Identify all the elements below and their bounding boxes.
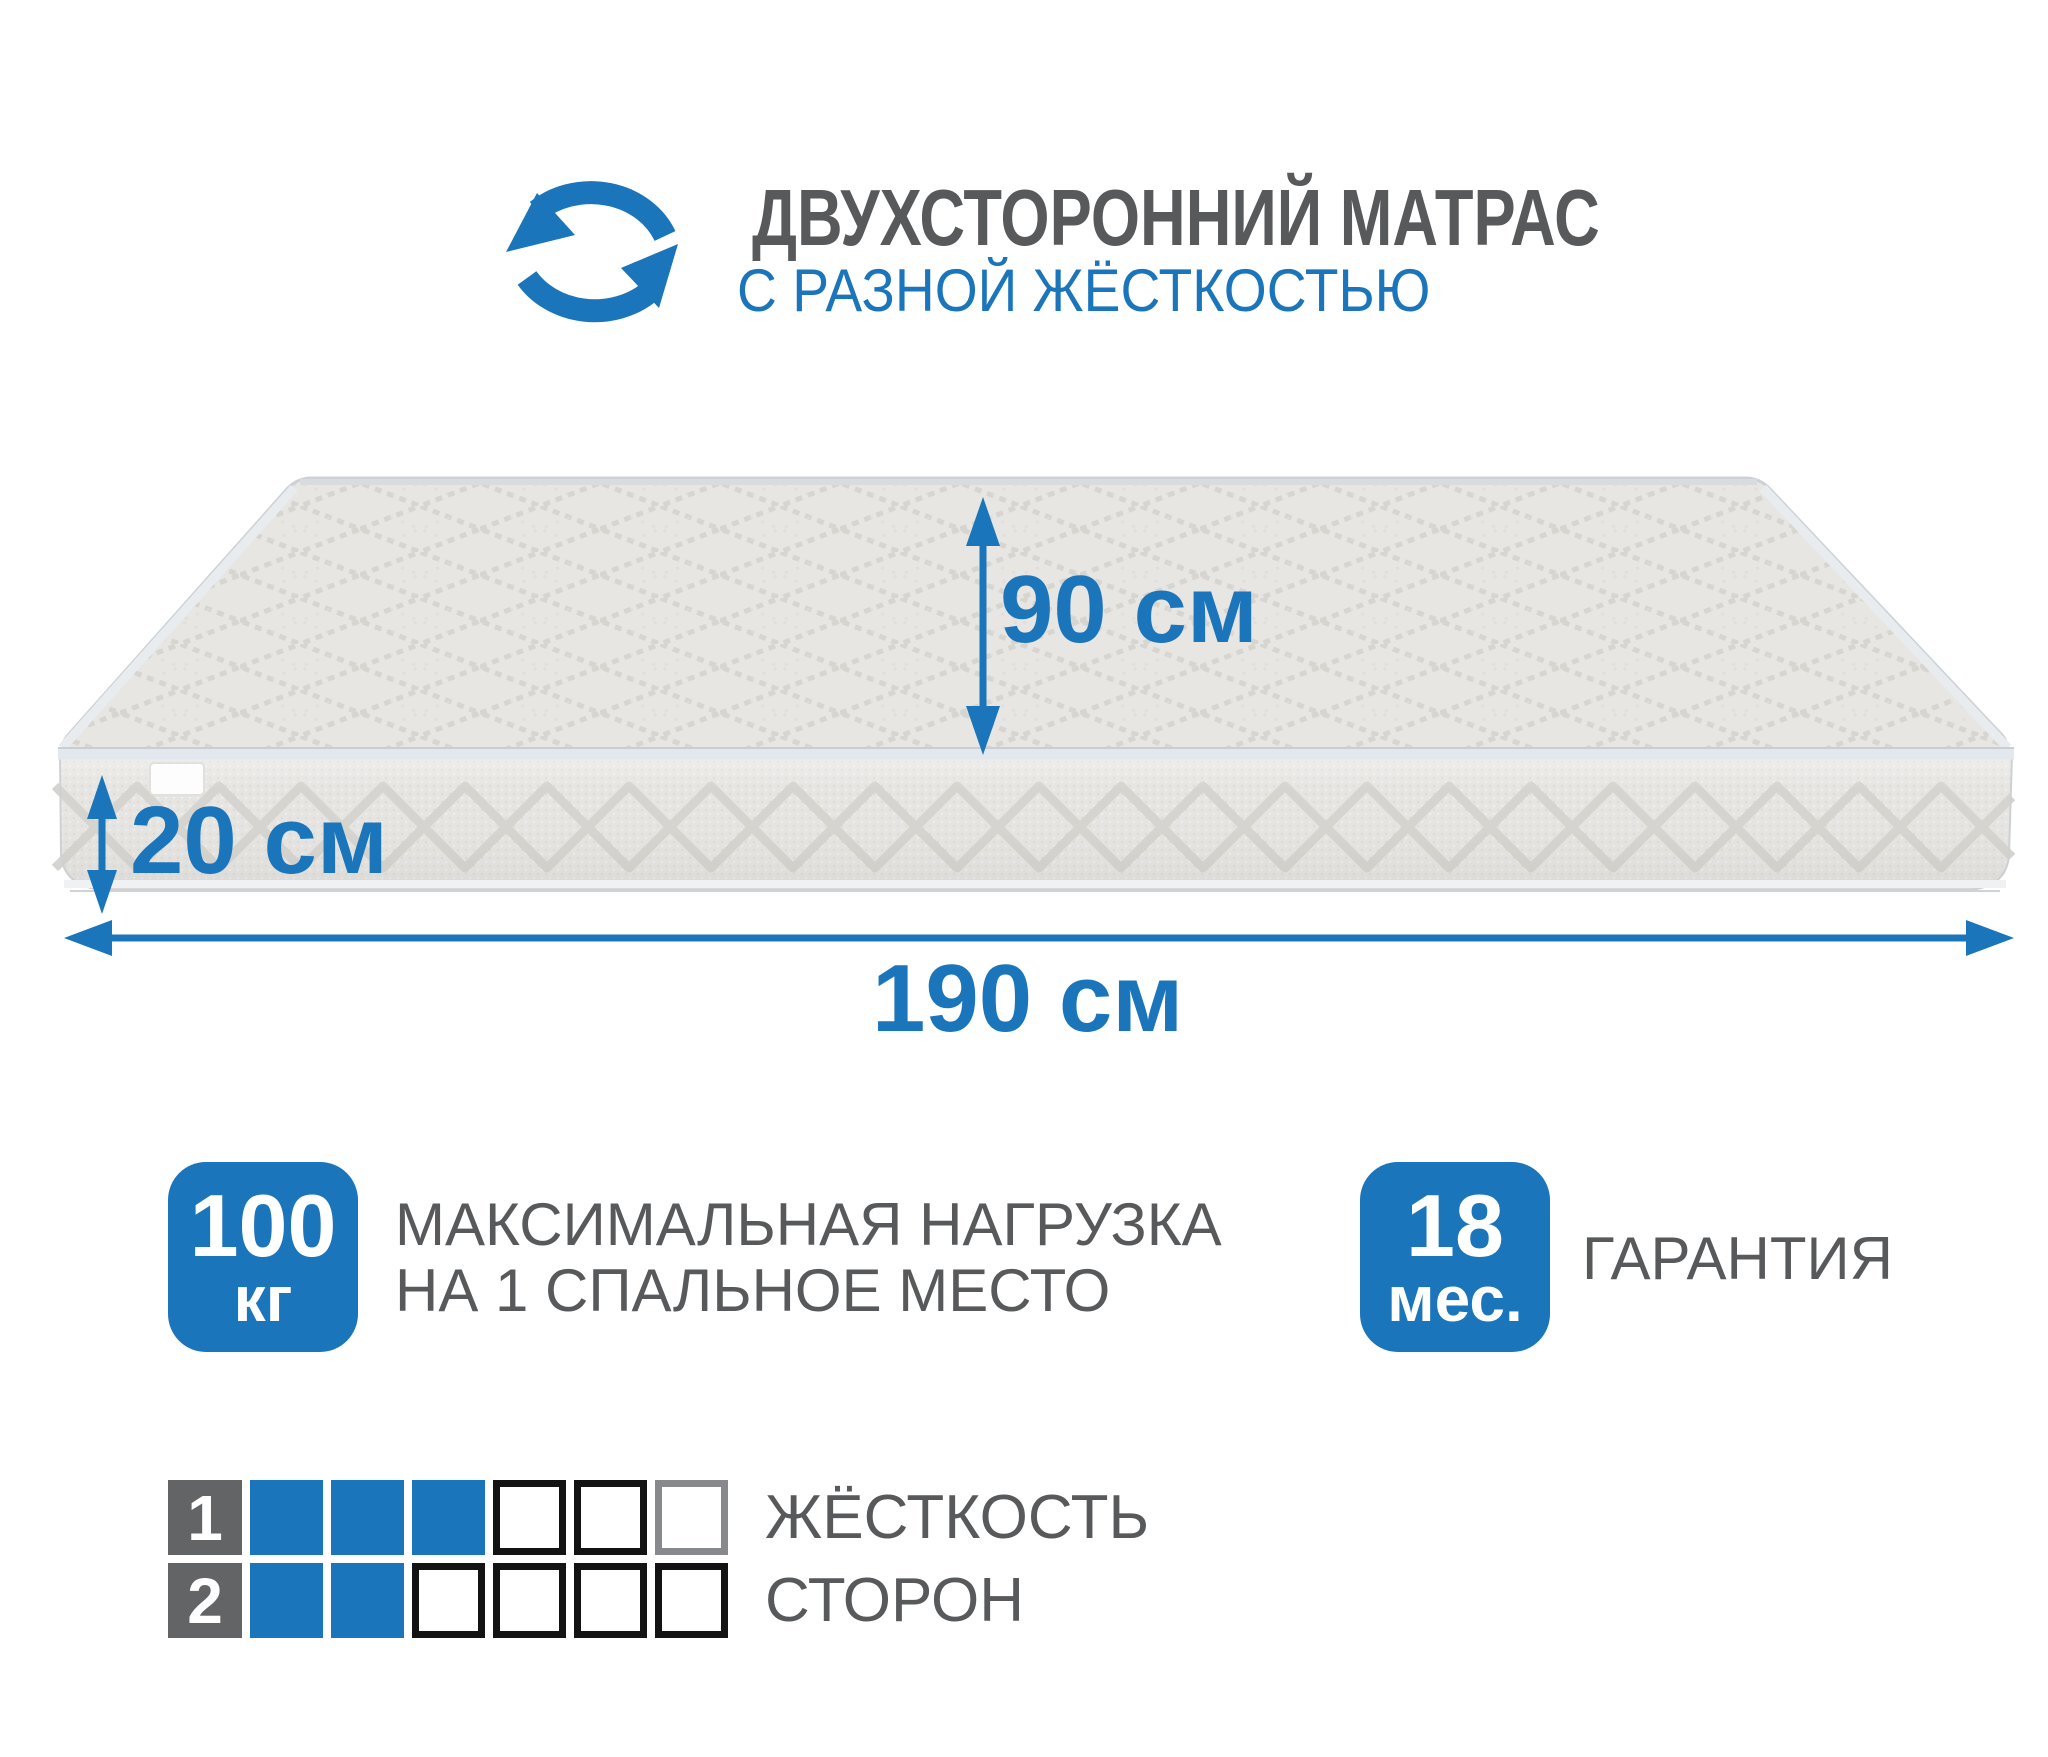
firmness-cell-empty (412, 1563, 485, 1638)
infographic-canvas: ДВУХСТОРОННИЙ МАТРАС С РАЗНОЙ ЖЁСТКОСТЬЮ… (0, 0, 2048, 1757)
firmness-cell-filled (331, 1563, 404, 1638)
firmness-cell-filled (250, 1563, 323, 1638)
firmness-cell-filled (331, 1480, 404, 1555)
firmness-cell-empty-muted (655, 1480, 728, 1555)
depth-dimension-label: 90 см (1000, 562, 1258, 658)
page-title: ДВУХСТОРОННИЙ МАТРАС (752, 176, 1600, 260)
max-load-badge: 100 кг (168, 1162, 358, 1352)
firmness-row-number: 1 (168, 1480, 242, 1555)
firmness-row: 2 (168, 1563, 736, 1638)
max-load-unit: кг (234, 1268, 293, 1330)
max-load-caption: МАКСИМАЛЬНАЯ НАГРУЗКА НА 1 СПАЛЬНОЕ МЕСТ… (395, 1192, 1222, 1324)
firmness-cell-empty (655, 1563, 728, 1638)
warranty-badge: 18 мес. (1360, 1162, 1550, 1352)
firmness-cell-filled (250, 1480, 323, 1555)
warranty-unit: мес. (1387, 1268, 1522, 1330)
firmness-caption-line2: СТОРОН (765, 1563, 1024, 1638)
warranty-value: 18 (1406, 1184, 1504, 1268)
firmness-cell-empty (493, 1563, 566, 1638)
max-load-value: 100 (190, 1184, 337, 1268)
firmness-cell-empty (493, 1480, 566, 1555)
firmness-cell-empty (574, 1480, 647, 1555)
page-subtitle: С РАЗНОЙ ЖЁСТКОСТЬЮ (737, 258, 1430, 324)
firmness-cell-empty (574, 1563, 647, 1638)
rotate-arrows-icon (506, 193, 678, 311)
firmness-row: 1 (168, 1480, 736, 1555)
firmness-row-number: 2 (168, 1563, 242, 1638)
max-load-caption-line1: МАКСИМАЛЬНАЯ НАГРУЗКА (395, 1192, 1222, 1258)
firmness-caption-line1: ЖЁСТКОСТЬ (765, 1480, 1149, 1555)
firmness-cell-filled (412, 1480, 485, 1555)
length-dimension-label: 190 см (872, 951, 1183, 1047)
max-load-caption-line2: НА 1 СПАЛЬНОЕ МЕСТО (395, 1258, 1222, 1324)
height-dimension-label: 20 см (130, 793, 388, 889)
firmness-rows: 12 (168, 1480, 736, 1646)
warranty-label: ГАРАНТИЯ (1582, 1226, 1893, 1292)
